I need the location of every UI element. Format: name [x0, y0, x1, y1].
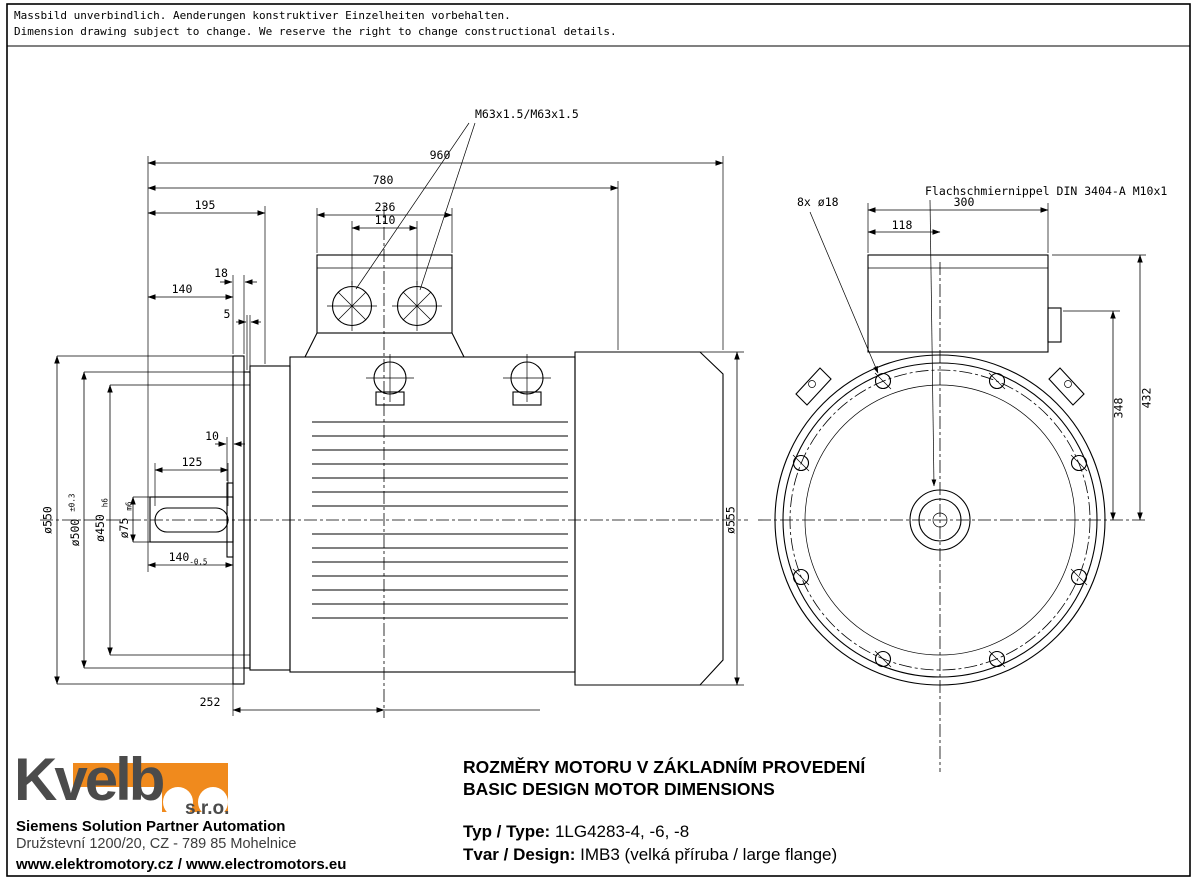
dim-spigot-value: ø450 [93, 514, 107, 542]
partner-line: Siemens Solution Partner Automation [16, 818, 285, 835]
type-label: Typ / Type: [463, 822, 550, 841]
eyebolt [366, 354, 414, 405]
lifting-lug [1049, 368, 1084, 405]
dim-box-width: 236 [375, 201, 396, 214]
dim-bolt-circle-tol: ±0.3 [67, 494, 76, 512]
dim-key-length: 125 [182, 456, 203, 469]
logo-suffix: s.r.o. [185, 798, 229, 820]
terminal-box [305, 255, 464, 357]
address-line: Družstevní 1200/20, CZ - 789 85 Mohelnic… [16, 836, 296, 852]
drawing-title-en: BASIC DESIGN MOTOR DIMENSIONS [463, 779, 775, 800]
dim-step: 5 [224, 308, 231, 321]
motor-body [290, 357, 575, 672]
website-line: www.elektromotory.cz / www.electromotors… [16, 856, 346, 873]
design-label: Tvar / Design: [463, 845, 575, 864]
dim-flange-thickness: 18 [214, 267, 228, 280]
drawing-linework [0, 0, 1196, 881]
dim-front-length: 195 [195, 199, 216, 212]
fan-cover [575, 352, 723, 685]
dim-overall-length: 960 [430, 149, 451, 162]
dim-box-total-width: 300 [954, 196, 975, 209]
dim-bolt-circle-value: ø500 [68, 519, 82, 547]
flange-holes-label: 8x ø18 [797, 196, 839, 209]
dim-gland-spacing: 110 [375, 214, 396, 227]
dim-height-to-port: 348 [1113, 398, 1126, 419]
dim-shaft-ext-value: 140 [169, 550, 190, 564]
dim-shaft-dia: ø75 m6 [118, 502, 134, 539]
terminal-box-front [868, 255, 1061, 352]
dim-spigot-tol: h6 [101, 498, 110, 507]
dim-spigot-dia: ø450 h6 [94, 498, 110, 542]
dimension-lines-front [868, 210, 1140, 520]
dim-shaft-length: 140 [172, 283, 193, 296]
cable-gland [327, 281, 377, 331]
front-view [758, 200, 1148, 772]
logo-wordmark: Kvelb [14, 745, 162, 814]
dim-shaft-ext: 140-0.5 [169, 551, 208, 567]
dim-housing-length: 780 [373, 174, 394, 187]
dim-box-offset: 118 [892, 219, 913, 232]
design-value: IMB3 (velká příruba / large flange) [580, 845, 837, 864]
dim-height-to-box-top: 432 [1141, 388, 1154, 409]
dim-flange-to-foot: 252 [200, 696, 221, 709]
company-logo: Kvelb s.r.o. [14, 753, 344, 823]
dim-shaft-dia-value: ø75 [117, 518, 131, 539]
drawing-title-cz: ROZMĚRY MOTORU V ZÁKLADNÍM PROVEDENÍ [463, 757, 865, 778]
cable-gland [392, 281, 442, 331]
design-line: Tvar / Design: IMB3 (velká příruba / lar… [463, 845, 837, 865]
side-port [1048, 308, 1061, 342]
type-value: 1LG4283-4, -6, -8 [555, 822, 689, 841]
dim-shoulder: 10 [205, 430, 219, 443]
dim-shaft-ext-tol: -0.5 [189, 557, 207, 566]
dim-bolt-circle-dia: ø500 ±0.3 [68, 494, 81, 547]
sheet-border [7, 4, 1190, 876]
dimension-drawing-page: Massbild unverbindlich. Aenderungen kons… [0, 0, 1196, 881]
gland-thread-label: M63x1.5/M63x1.5 [475, 108, 579, 121]
eyebolt [503, 354, 551, 405]
dim-fan-cover-dia: ø555 [725, 506, 738, 534]
dim-shaft-dia-tol: m6 [125, 502, 134, 511]
grease-nipple-leader-line [930, 200, 934, 486]
disclaimer-line-de: Massbild unverbindlich. Aenderungen kons… [14, 8, 511, 24]
dim-flange-outer-dia: ø550 [42, 506, 55, 534]
type-line: Typ / Type: 1LG4283-4, -6, -8 [463, 822, 689, 842]
disclaimer-line-en: Dimension drawing subject to change. We … [14, 24, 617, 40]
dimension-lines [57, 163, 737, 710]
lifting-lug [796, 368, 831, 405]
end-shield [250, 366, 290, 670]
